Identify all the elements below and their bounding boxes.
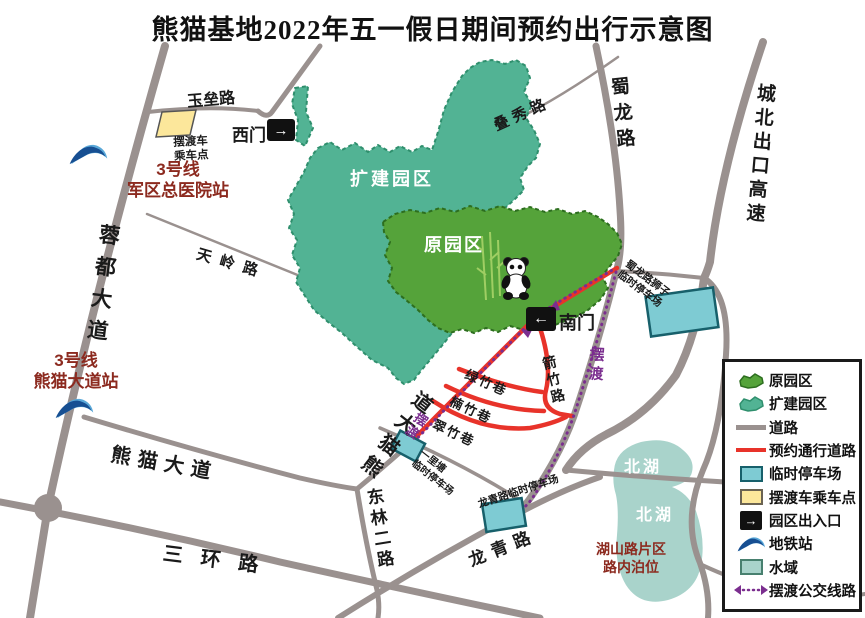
- west-gate-icon: →: [267, 119, 295, 141]
- shuttle-point-shape: [156, 110, 196, 137]
- expansion-area-icon: [733, 394, 769, 414]
- panda-base-travel-map: { "title": "熊猫基地2022年五一假日期间预约出行示意图", "co…: [0, 0, 865, 618]
- expansion-area-small-lobe: [292, 86, 313, 146]
- road-line-icon: [733, 425, 769, 430]
- shuttle-point-swatch-icon: [733, 489, 769, 505]
- legend-item-gate: → 园区出入口: [733, 509, 855, 532]
- metro-station-icon-hospital: [66, 138, 110, 175]
- original-area-icon: [733, 371, 769, 391]
- roundabout: [34, 494, 62, 522]
- south-gate-icon: ←: [526, 307, 556, 331]
- water-swatch-icon: [733, 559, 769, 575]
- legend-item-original-area: 原园区: [733, 369, 855, 392]
- legend-item-parking: 临时停车场: [733, 462, 855, 485]
- west-gate-label: 西门: [232, 121, 266, 146]
- station-label-hospital: 3号线 军区总医院站: [108, 159, 248, 202]
- gate-icon: →: [733, 511, 769, 530]
- shuttle-route-icon: [733, 584, 769, 596]
- parking-swatch-icon: [733, 466, 769, 482]
- legend-item-water: 水域: [733, 556, 855, 579]
- legend: 原园区 扩建园区 道路 预约通行道路 临时停车场 摆渡车乘车点 → 园区出入口 …: [722, 359, 862, 612]
- south-gate-label: 南门: [559, 309, 595, 335]
- legend-item-expansion-area: 扩建园区: [733, 392, 855, 415]
- reserved-road-line-icon: [733, 448, 769, 452]
- road-westgate-north: [258, 46, 320, 115]
- legend-item-reserved-road: 预约通行道路: [733, 439, 855, 462]
- lake-label-lower: 北湖: [636, 501, 674, 525]
- expansion-area-label: 扩建园区: [350, 165, 434, 191]
- hushan-parking-note: 湖山路片区 路内泊位: [576, 541, 686, 576]
- shuttle-label-shulong: 摆渡: [584, 346, 607, 385]
- legend-item-shuttle-route: 摆渡公交线路: [733, 579, 855, 602]
- road-rongdu-avenue-south: [30, 507, 48, 618]
- road-label-yulei: 玉垒路: [186, 84, 236, 112]
- original-area-label: 原园区: [424, 231, 484, 257]
- metro-icon: [733, 533, 769, 555]
- legend-item-shuttle-point: 摆渡车乘车点: [733, 486, 855, 509]
- legend-item-metro: 地铁站: [733, 532, 855, 555]
- panda-icon: [500, 258, 532, 301]
- legend-item-road: 道路: [733, 416, 855, 439]
- lake-label-upper: 北湖: [624, 453, 662, 477]
- metro-station-icon-panda-avenue: [52, 392, 96, 429]
- station-label-panda-avenue: 3号线 熊猫大道站: [10, 350, 142, 393]
- page-title: 熊猫基地2022年五一假日期间预约出行示意图: [152, 8, 714, 47]
